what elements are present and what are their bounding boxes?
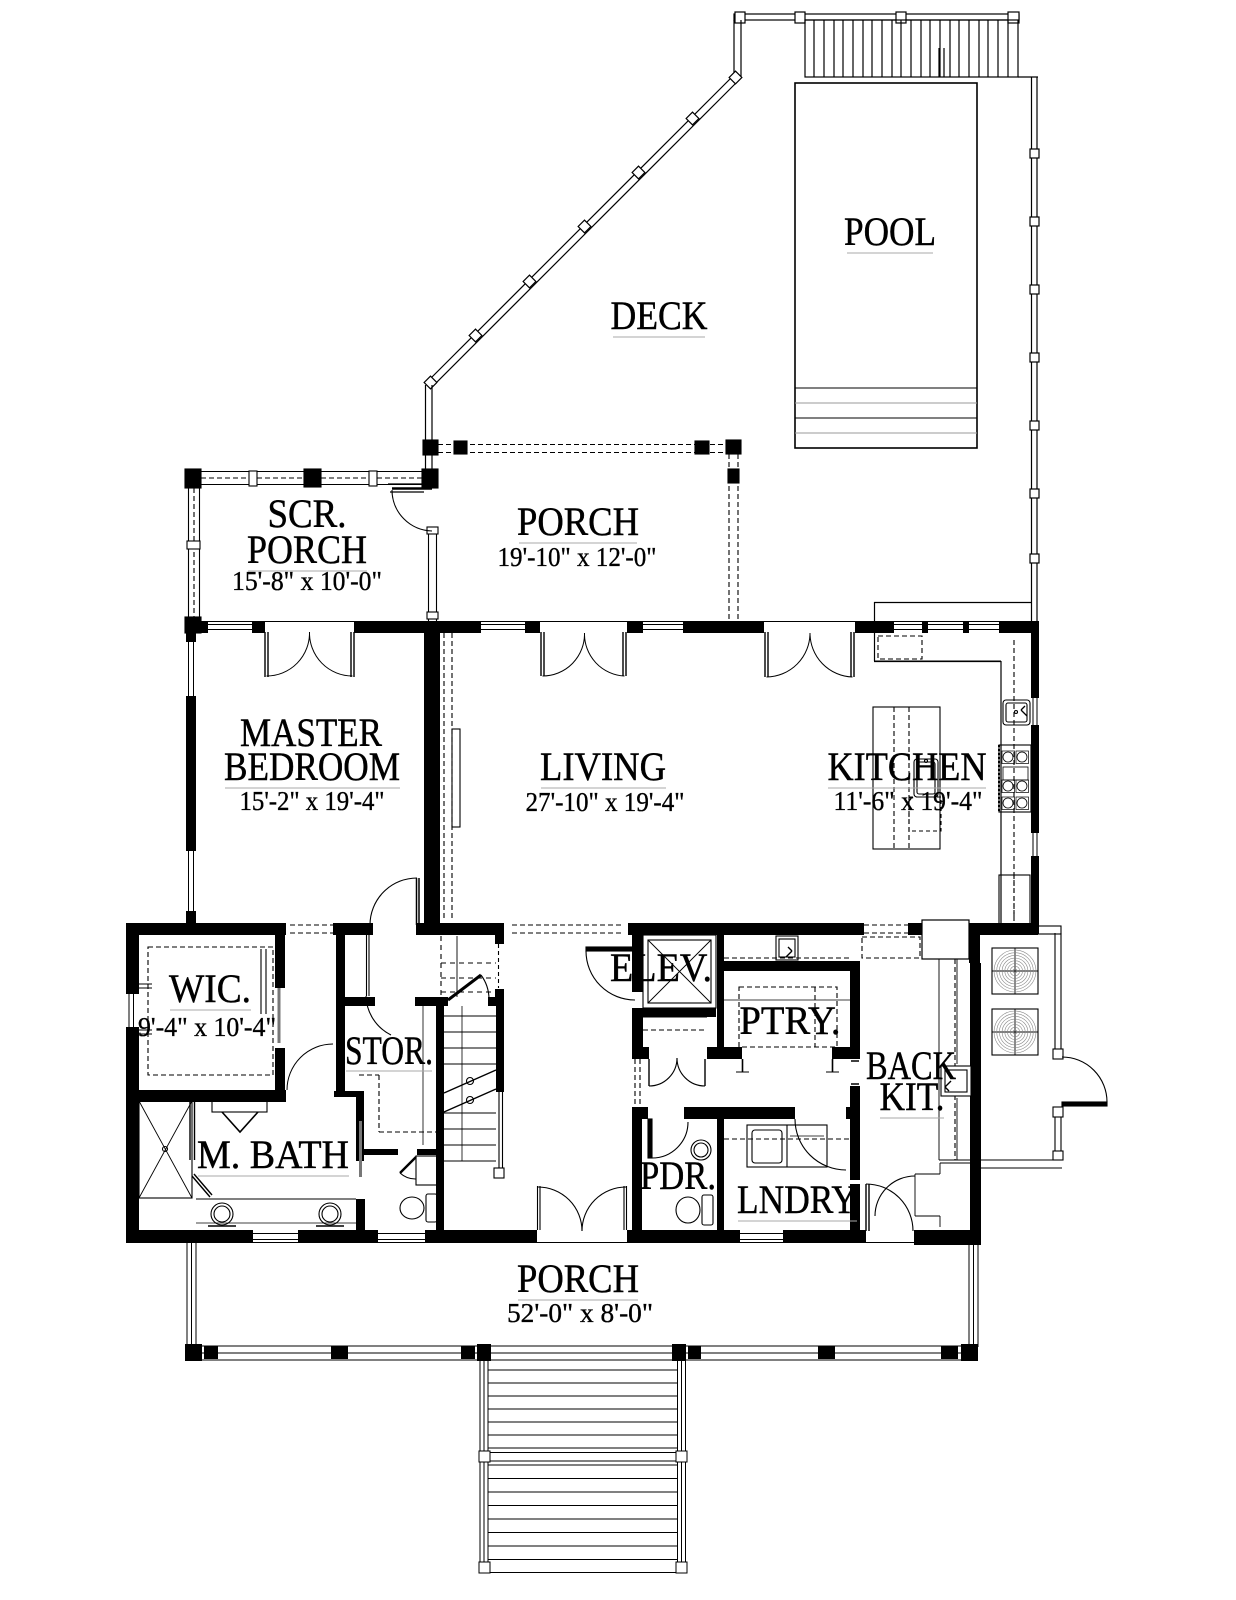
svg-text:11'-6" x 19'-4": 11'-6" x 19'-4" [834, 786, 983, 816]
svg-text:9'-4" x 10'-4": 9'-4" x 10'-4" [138, 1012, 276, 1042]
svg-text:LNDRY: LNDRY [737, 1177, 857, 1222]
svg-text:BEDROOM: BEDROOM [224, 744, 400, 789]
svg-text:M. BATH: M. BATH [197, 1132, 349, 1177]
svg-text:KIT.: KIT. [880, 1074, 945, 1119]
svg-text:19'-10" x 12'-0": 19'-10" x 12'-0" [498, 542, 657, 572]
svg-text:LIVING: LIVING [540, 744, 666, 789]
svg-text:27'-10" x 19'-4": 27'-10" x 19'-4" [526, 787, 685, 817]
svg-text:KITCHEN: KITCHEN [828, 744, 987, 789]
svg-text:PTRY.: PTRY. [740, 998, 841, 1043]
svg-text:DECK: DECK [611, 293, 708, 338]
svg-text:15'-8" x 10'-0": 15'-8" x 10'-0" [232, 566, 382, 596]
svg-text:PORCH: PORCH [517, 499, 639, 544]
svg-text:PDR.: PDR. [640, 1153, 716, 1198]
svg-text:ELEV.: ELEV. [610, 945, 712, 990]
svg-text:POOL: POOL [844, 209, 936, 254]
svg-text:15'-2" x 19'-4": 15'-2" x 19'-4" [240, 786, 385, 816]
svg-text:52'-0" x 8'-0": 52'-0" x 8'-0" [507, 1298, 653, 1328]
svg-text:PORCH: PORCH [517, 1256, 639, 1301]
svg-text:WIC.: WIC. [169, 966, 251, 1011]
svg-text:STOR.: STOR. [345, 1028, 433, 1073]
